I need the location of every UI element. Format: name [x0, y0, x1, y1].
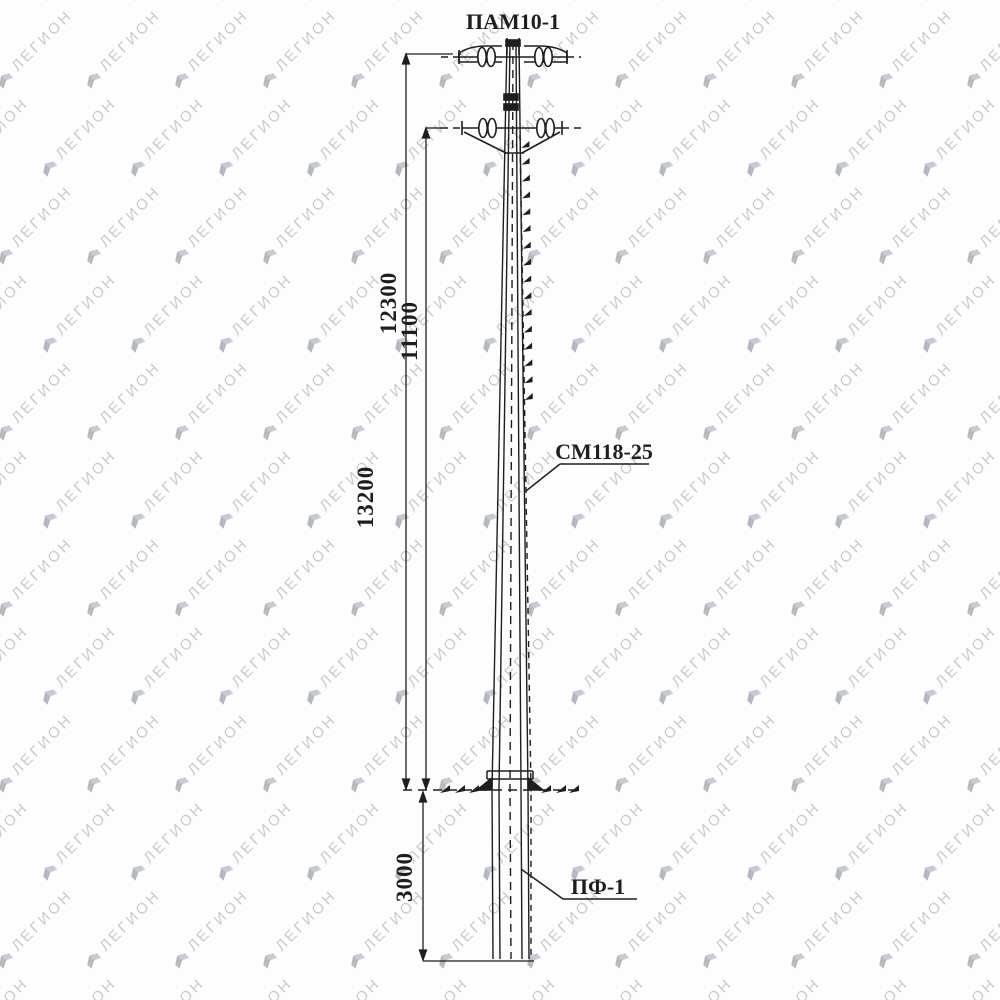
lower-crossarm — [441, 94, 581, 153]
step-bolt — [523, 259, 531, 266]
top-crossarm — [441, 38, 581, 67]
pole-body — [492, 40, 531, 959]
dimension-lines — [403, 54, 535, 961]
step-bolt — [525, 376, 533, 383]
step-bolt — [522, 191, 530, 198]
step-bolt — [523, 242, 531, 249]
step-bolt — [523, 275, 531, 282]
pole-label: СМ118-25 — [555, 439, 653, 464]
step-bolt — [522, 175, 530, 182]
step-bolt — [524, 309, 532, 316]
step-bolt — [524, 359, 532, 366]
step-bolt — [523, 292, 531, 299]
foundation-label: ПФ-1 — [571, 874, 625, 899]
leader-lines — [521, 464, 649, 899]
left-anchor-wedge — [477, 778, 492, 790]
step-bolt — [522, 158, 530, 165]
dim-overall-height: 13200 — [353, 466, 378, 529]
step-bolt — [522, 208, 530, 215]
step-bolt — [524, 326, 532, 333]
ground-hatch — [556, 785, 566, 793]
top-assembly-label: ПАМ10-1 — [466, 9, 560, 34]
ground-hatch — [569, 785, 579, 793]
ground-hatch — [455, 785, 465, 793]
dim-embedment-depth: 3000 — [392, 852, 417, 902]
pole-drawing: ПАМ10-1 СМ118-25 ПФ-1 12300 11100 13200 … — [0, 0, 1000, 1000]
step-bolt — [525, 393, 533, 400]
step-bolt — [523, 225, 531, 232]
ground-hatch — [440, 785, 450, 793]
scanned-pole-drawing-page: ЛЕГИОНЛЕГИОНЛЕГИОНЛЕГИОНЛЕГИОНЛЕГИОНЛЕГИ… — [0, 0, 1000, 1000]
step-bolt — [524, 343, 532, 350]
ground-hatch — [469, 785, 479, 793]
dim-lower-crossarm-to-ground: 11100 — [397, 301, 422, 361]
step-bolt — [521, 141, 529, 148]
right-anchor-wedge — [528, 778, 543, 790]
